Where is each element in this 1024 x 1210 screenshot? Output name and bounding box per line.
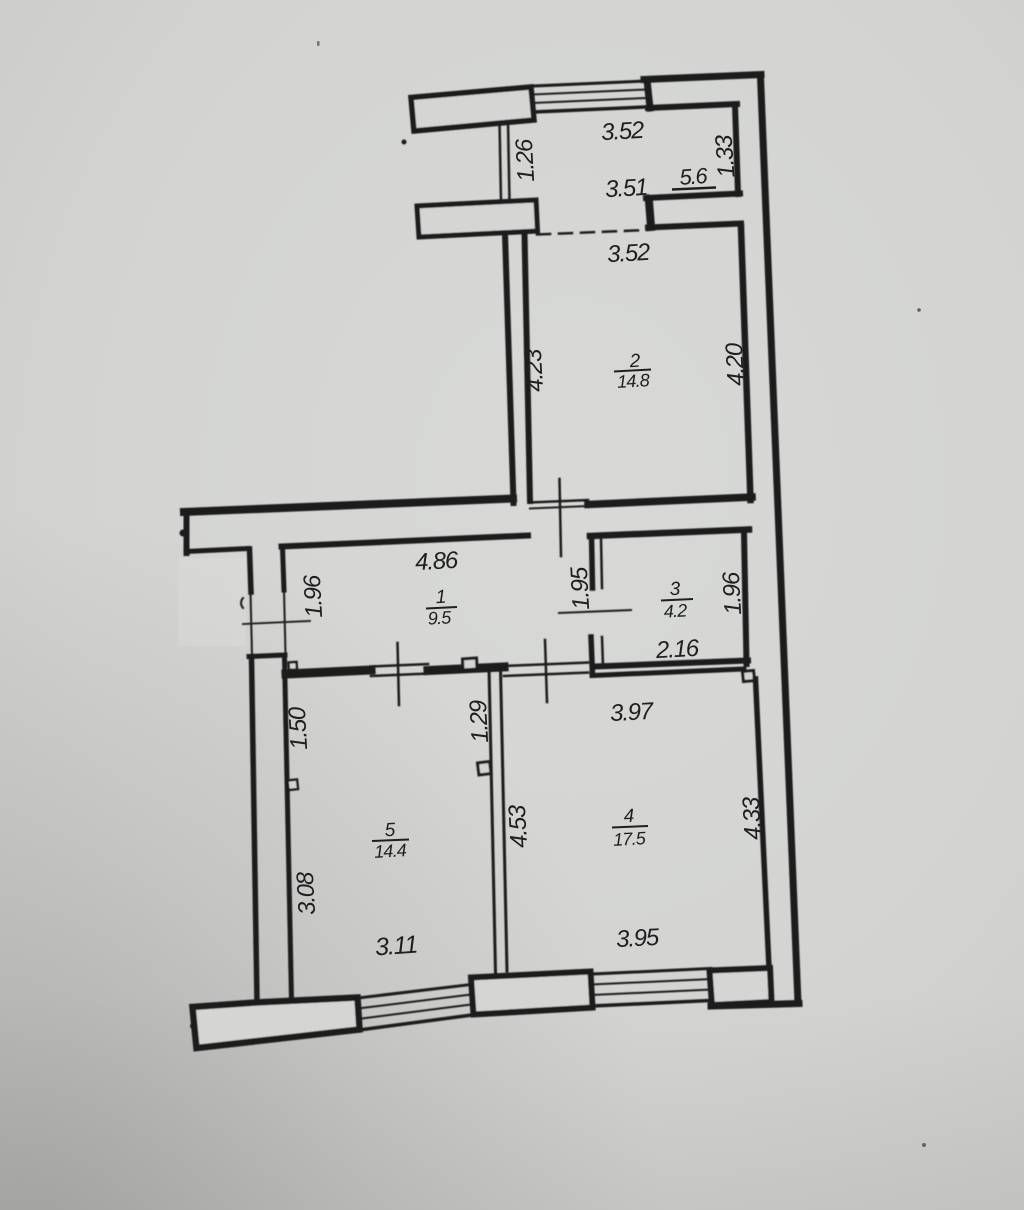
svg-text:2: 2 <box>628 351 641 373</box>
svg-text:3.52: 3.52 <box>600 117 644 147</box>
svg-text:14.4: 14.4 <box>374 840 408 862</box>
svg-text:1: 1 <box>435 587 447 609</box>
svg-text:4: 4 <box>623 806 635 828</box>
svg-text:3.95: 3.95 <box>615 924 660 953</box>
svg-text:9.5: 9.5 <box>427 607 452 628</box>
svg-text:17.5: 17.5 <box>613 828 648 850</box>
svg-text:2.16: 2.16 <box>654 635 700 664</box>
svg-text:4.20: 4.20 <box>721 341 750 386</box>
svg-text:1.96: 1.96 <box>299 573 328 618</box>
svg-text:4.2: 4.2 <box>663 600 687 621</box>
svg-text:1.26: 1.26 <box>511 137 540 182</box>
svg-text:1.96: 1.96 <box>718 570 747 615</box>
svg-text:14.8: 14.8 <box>617 370 651 392</box>
svg-text:4.23: 4.23 <box>520 347 549 392</box>
svg-text:1.50: 1.50 <box>284 705 313 750</box>
svg-text:4.53: 4.53 <box>504 803 533 848</box>
svg-text:3.52: 3.52 <box>606 239 650 269</box>
svg-text:5.6: 5.6 <box>679 163 710 190</box>
svg-text:4.33: 4.33 <box>738 795 767 840</box>
svg-text:1.29: 1.29 <box>465 699 494 743</box>
svg-text:5: 5 <box>384 820 396 842</box>
svg-text:3.08: 3.08 <box>292 870 321 915</box>
svg-text:3: 3 <box>669 579 681 601</box>
svg-text:3.11: 3.11 <box>374 931 418 962</box>
svg-text:3.51: 3.51 <box>604 174 647 204</box>
svg-text:3.97: 3.97 <box>609 698 655 727</box>
svg-text:1.33: 1.33 <box>710 133 740 179</box>
svg-text:1.95: 1.95 <box>566 565 595 610</box>
svg-text:4.86: 4.86 <box>414 547 459 576</box>
